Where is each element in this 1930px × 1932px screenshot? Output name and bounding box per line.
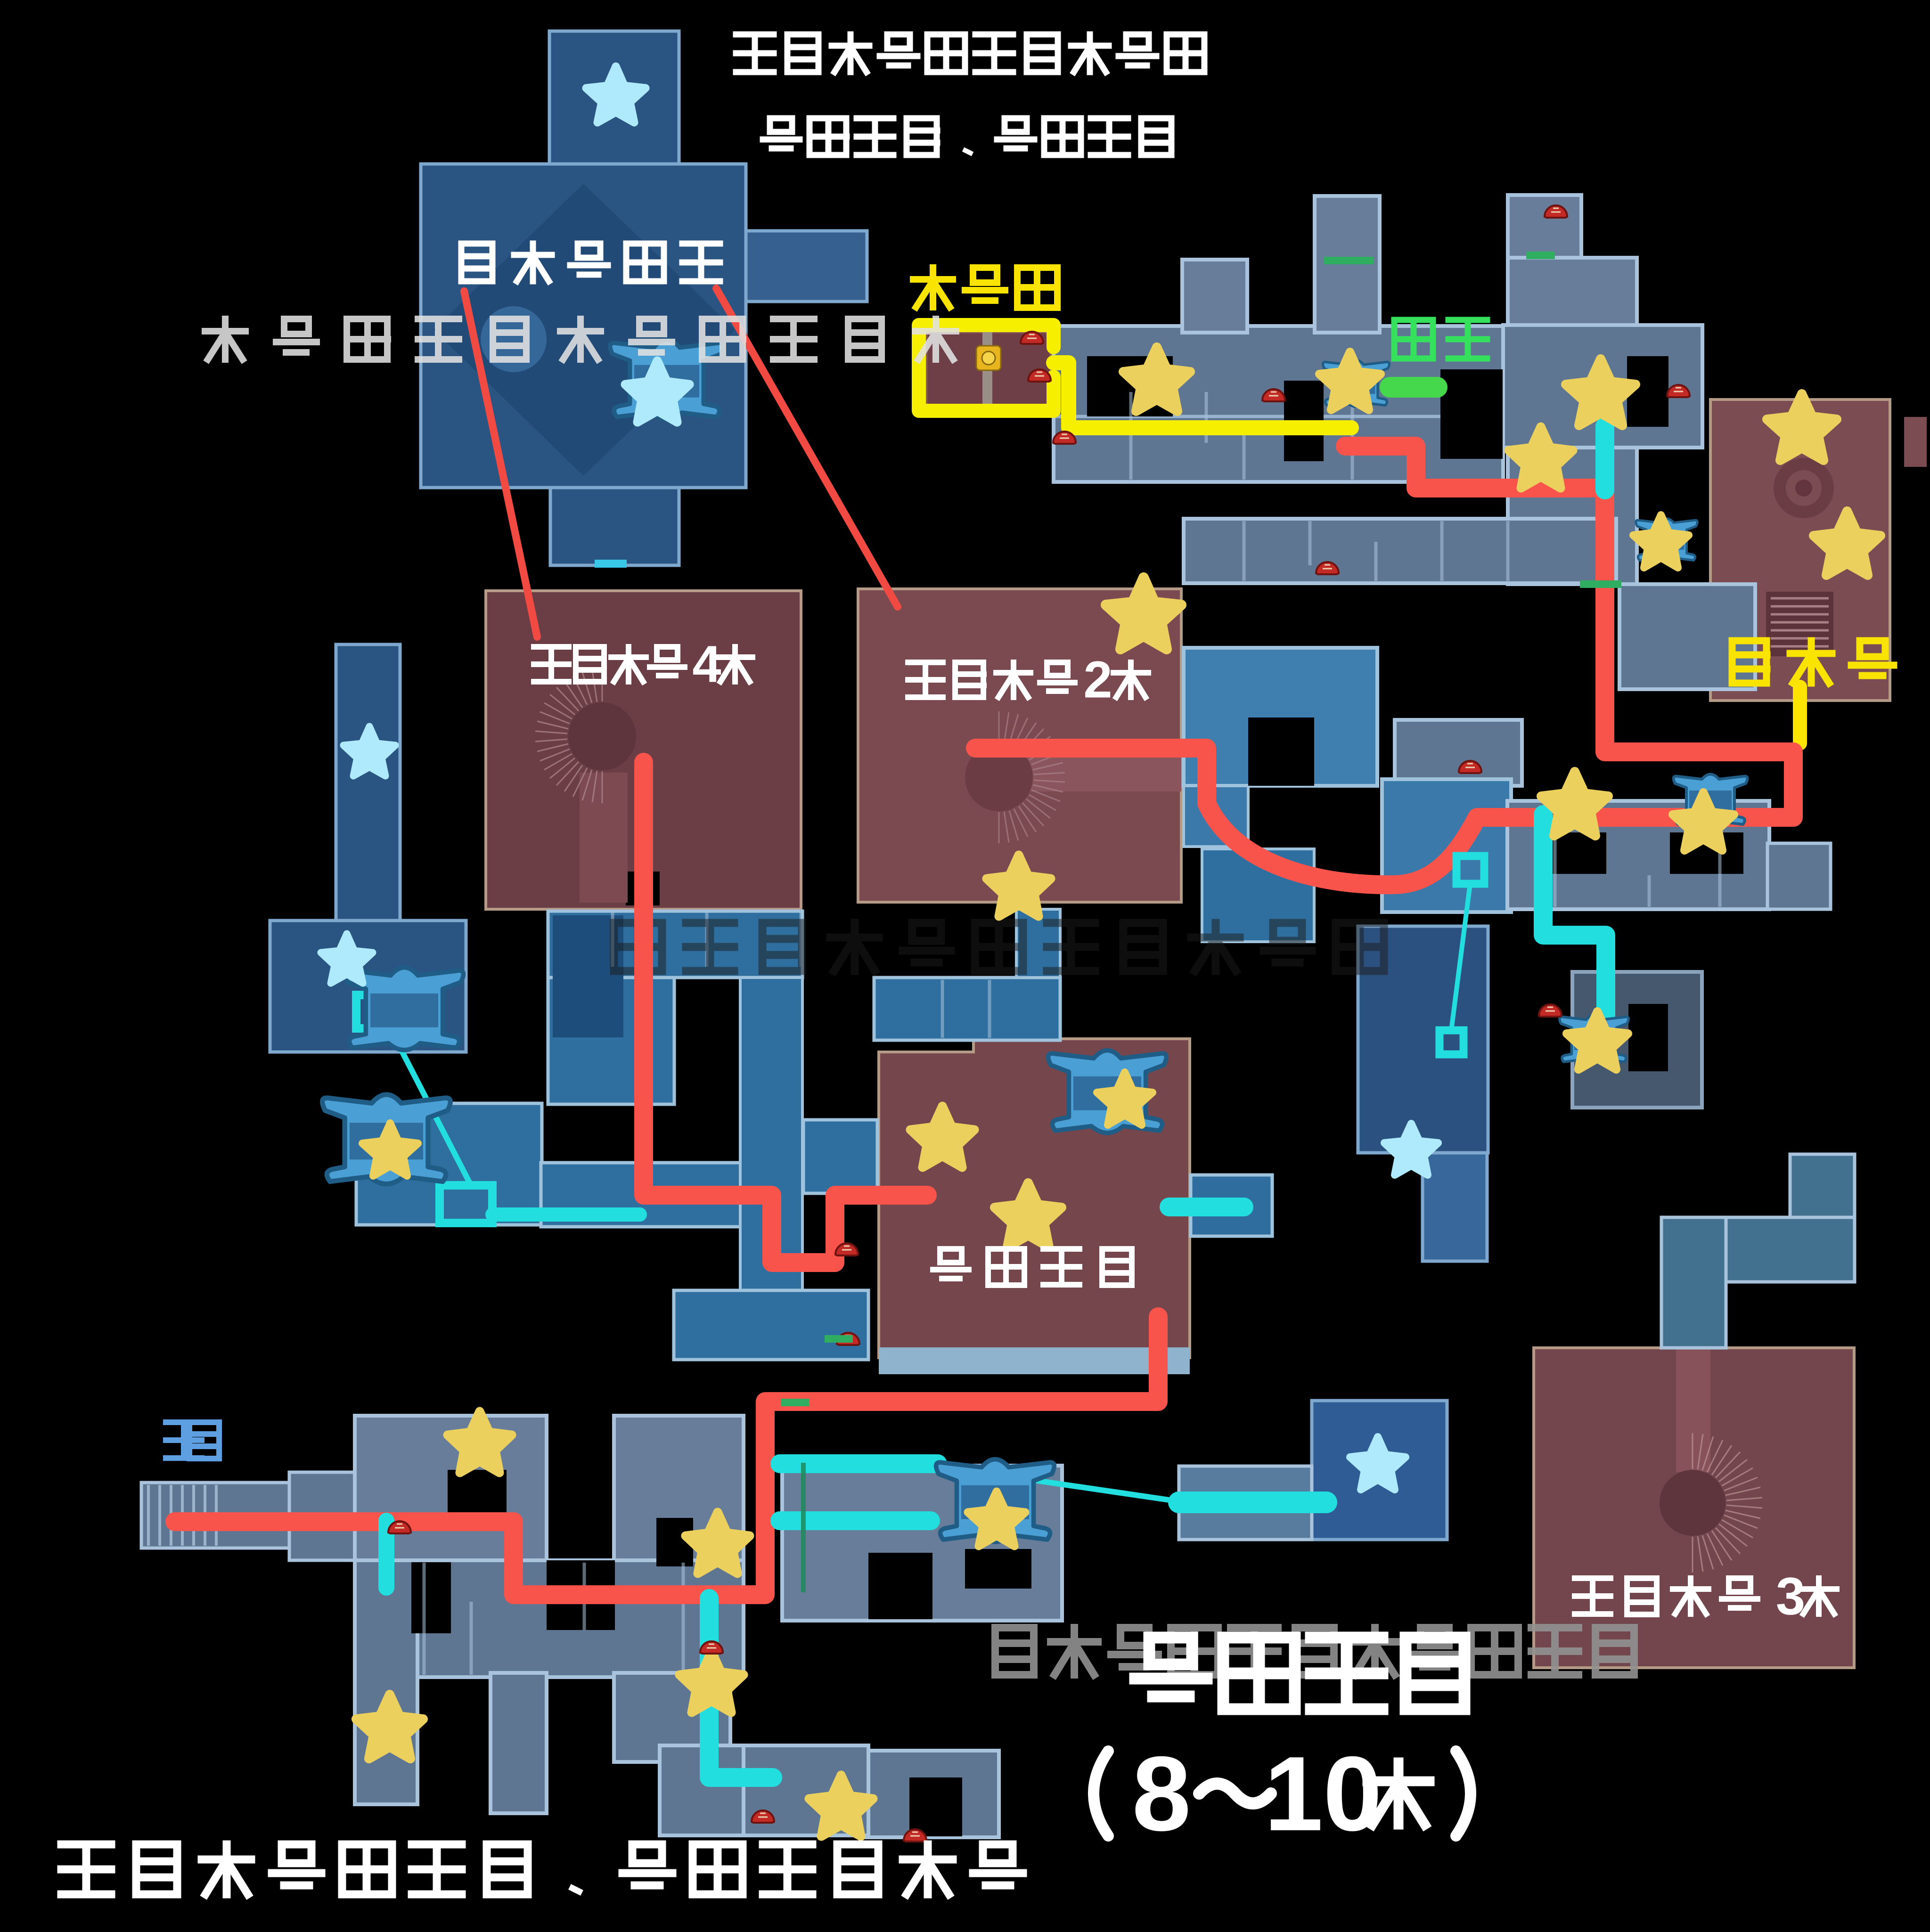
svg-text:8: 8 xyxy=(1132,1734,1191,1853)
svg-text:4: 4 xyxy=(692,636,721,693)
svg-text:2: 2 xyxy=(1083,651,1112,709)
svg-text:10: 10 xyxy=(1264,1734,1382,1853)
svg-text:3: 3 xyxy=(1776,1567,1805,1626)
